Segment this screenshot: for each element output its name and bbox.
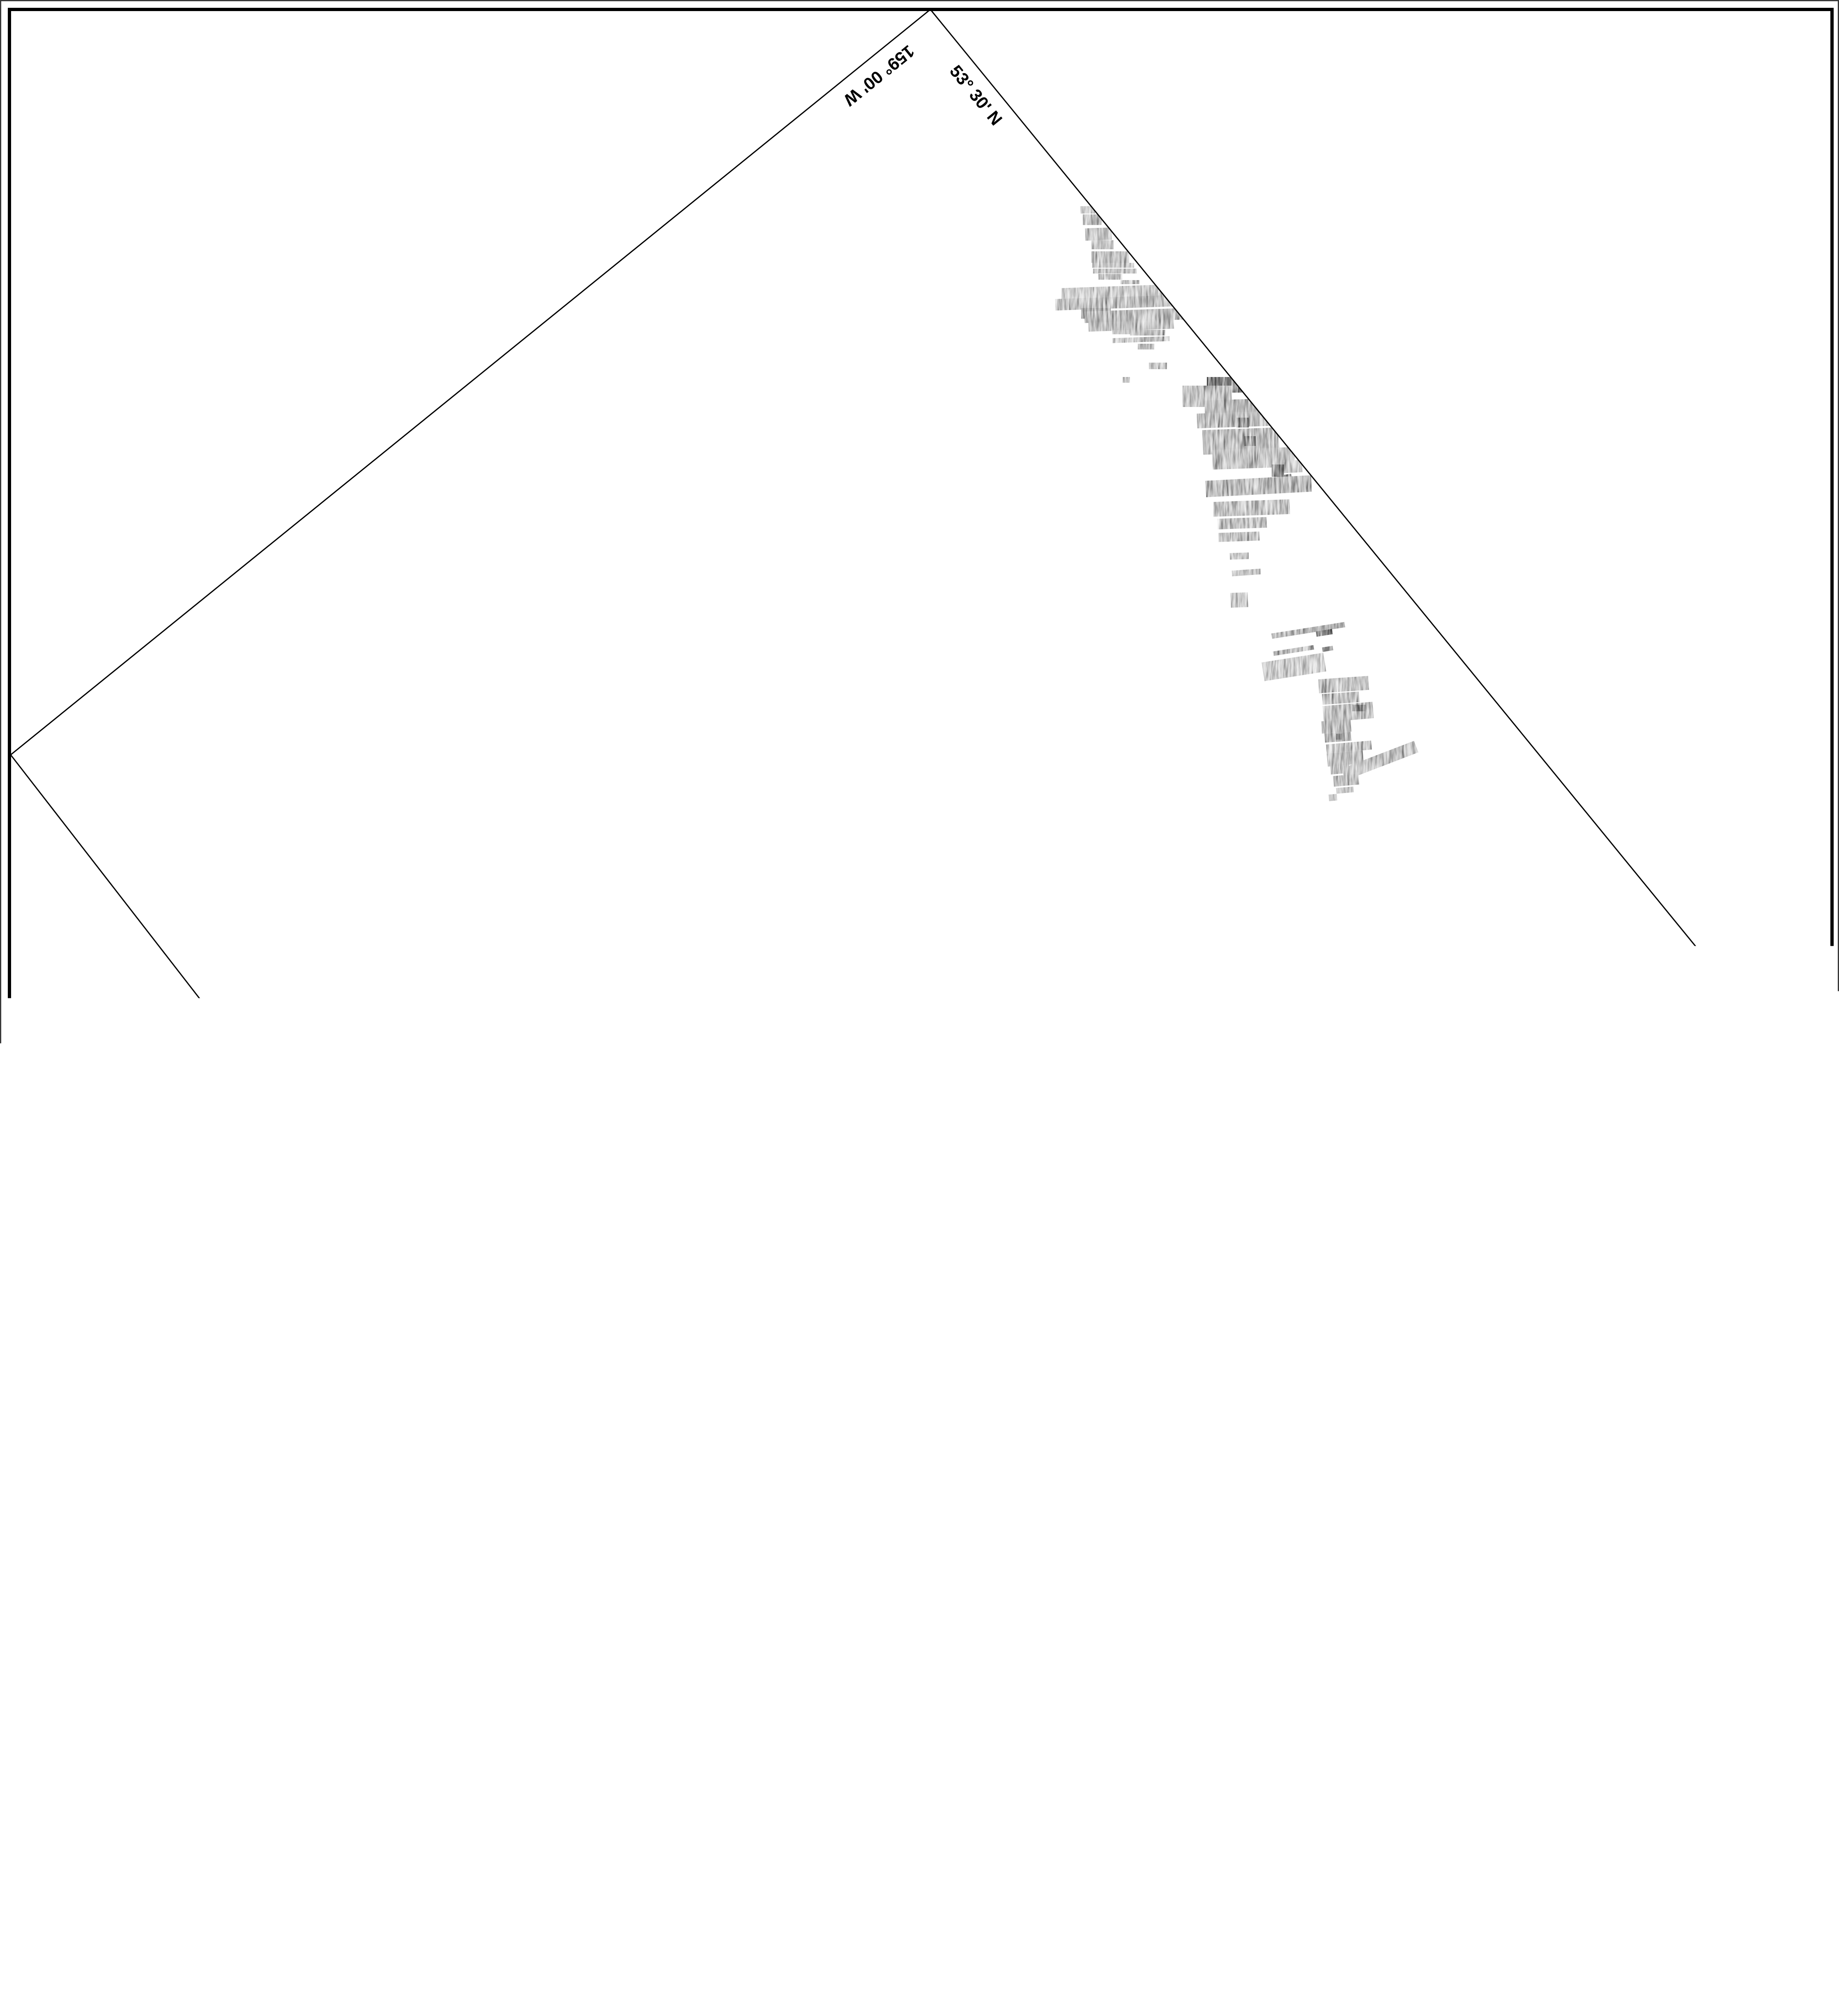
map-boundary-outline [11,9,1830,1864]
sonar-strip [1091,240,1114,249]
scalebar-segment [1285,1883,1448,1900]
sonar-strip [1526,1051,1535,1059]
sonar-strip [1181,227,1204,241]
sonar-strip [1130,330,1165,336]
sonar-strip [1272,464,1284,477]
sonar-strip [1085,228,1112,241]
sonar-strip [1218,517,1267,529]
page-bottom-rule [1,2011,1839,2014]
sonar-strip [1321,720,1351,734]
sonar-strip [1092,263,1134,268]
scalebar-segment [795,1883,958,1900]
map-caption: OMG/ArcticNet Basemap: 53_30_N_159_00_W … [513,1985,1346,2010]
sonar-strip [1326,740,1372,754]
sonar-strip [1213,499,1290,517]
scalebar-segment [1115,1936,1266,1952]
sonar-strip [1336,786,1353,794]
scalebar [660,1935,1419,1954]
sonar-strip [1330,765,1350,775]
scalebar-segment [964,1936,1115,1952]
sonar-strip [1489,974,1505,984]
colorbar-max-label: -5 dB [351,1878,396,1900]
sonar-strip [1322,702,1374,722]
scalebar-segment [1121,1883,1285,1900]
sonar-strip [1352,705,1365,711]
north-arrow-icon: N [1708,1069,1777,1133]
graticule-label: 158° 30' W [881,1773,960,1841]
sonar-strip [1333,774,1359,786]
sonar-strip [1218,531,1260,542]
map-sheet: 159° 00' W53° 30' N53° 15' N158° 30' W N [0,0,1839,2016]
sonar-strip [1236,418,1249,428]
sonar-strip [1502,1097,1508,1108]
scalebar-label: 20 km [1010,1905,1070,1931]
sonar-strip [1121,280,1139,284]
sonar-swath-layer [1055,206,1643,1333]
sonar-strip [1437,998,1443,1004]
logo-country: CANADA [5,1963,251,1975]
sonar-strip [1123,377,1130,383]
sonar-strip [1093,269,1137,274]
map-canvas: 159° 00' W53° 30' N53° 15' N158° 30' W N [1,1,1839,2016]
sonar-strip [1098,274,1122,280]
sonar-strip [1322,646,1333,652]
colorbar-min-label: -40 dB [351,1964,407,1986]
scalebar-segment [662,1936,813,1952]
sonar-strip [1138,344,1154,349]
backscatter-colorbar [309,1881,345,1988]
sonar-strip [1112,336,1170,343]
sonar-strip [1445,966,1524,1000]
graticule-labels: 159° 00' W53° 30' N53° 15' N158° 30' W [819,41,1006,1841]
scalebar-segment [1266,1936,1418,1952]
graticule-label: 53° 15' N [819,1761,879,1830]
sonar-strip [1261,653,1326,681]
logo-title: Ocean Mapping Group [5,1885,251,1912]
sonar-strip [1318,676,1369,693]
sonar-strip [1230,592,1248,607]
sonar-strip [1230,552,1249,560]
omg-unb-logo: Ocean Mapping Group University of New Br… [5,1883,251,1977]
scalebar-segment [958,1883,1122,1900]
north-arrow-head [1760,1071,1777,1093]
scalebar-segment [813,1936,964,1952]
sonar-strip [1080,206,1095,214]
north-arrow-letter: N [1708,1069,1770,1133]
logo-university: University of New Brunswick [5,1950,251,1963]
sonar-strip [1328,794,1337,801]
sonar-strip [1091,251,1129,263]
sonar-strip [1336,734,1342,740]
arcticnet-logo: ArcticNet [1608,1902,1742,1939]
scalebar [630,1881,1450,1901]
sonar-strip [1149,363,1167,369]
sonar-strip [1244,436,1256,446]
sonar-strip [1271,622,1345,639]
sonar-strip [1457,1304,1537,1333]
scalebar-segment [631,1883,795,1900]
sonar-strip [1273,645,1314,656]
sonar-strip [1232,569,1261,577]
arcticnet-inuktitut-text: ᐅᑭᐅᖅᑕᖅᑐᒥᒃ ᑐᑭᓯᓂᐊᖅᑏᑦ [1580,1951,1809,1973]
sonar-strip [1322,692,1360,705]
scalebar-label: 10 NM [1007,1958,1072,1983]
sonar-strip [1205,475,1312,497]
graticule-label: 53° 30' N [946,62,1006,129]
